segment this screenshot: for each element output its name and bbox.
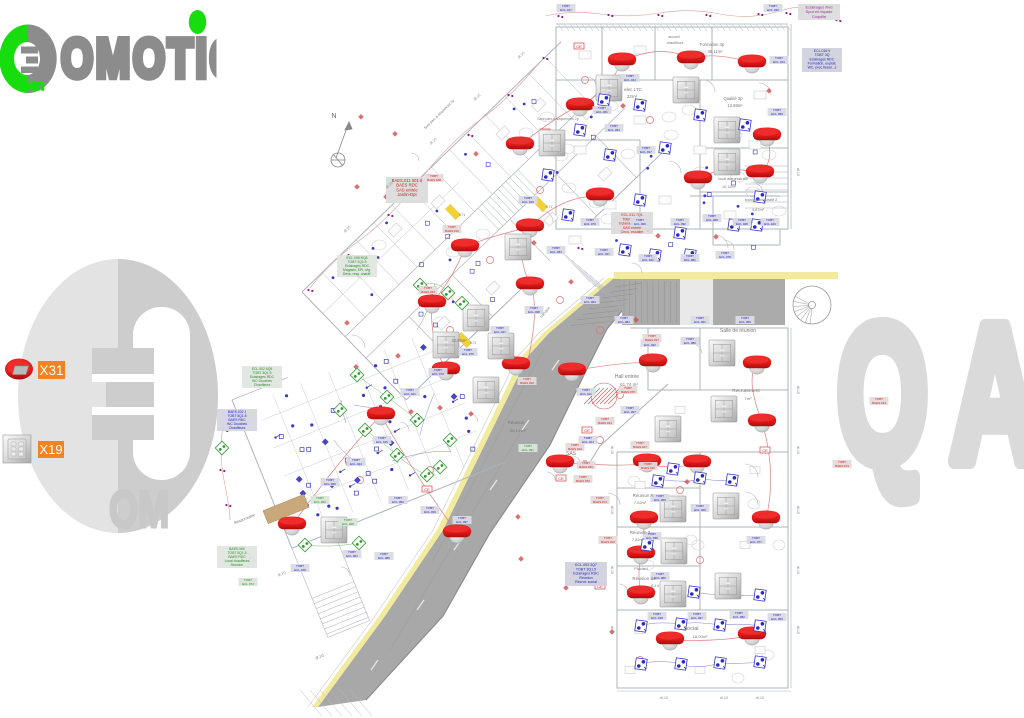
svg-text:BAES.092: BAES.092 [520,381,534,385]
svg-text:CE: CE [424,487,430,492]
svg-text:ECL.030: ECL.030 [424,510,436,514]
svg-text:Réunion: Réunion [231,563,244,567]
svg-text:ECL.082: ECL.082 [733,615,745,619]
svg-text:10,12m²: 10,12m² [722,185,737,189]
svg-text:BAES.010: BAES.010 [445,229,459,233]
svg-text:ECL.038: ECL.038 [528,310,540,314]
svg-text:ECL.059: ECL.059 [654,498,666,502]
svg-text:dl.10: dl.10 [610,626,614,634]
svg-text:ECL.084: ECL.084 [550,250,562,254]
svg-text:ECL.043: ECL.043 [764,222,776,226]
svg-text:WC, prec.fleear...s: WC, prec.fleear...s [808,66,837,70]
svg-text:8,14: 8,14 [651,583,660,588]
svg-text:Chauffeurs: Chauffeurs [254,383,271,387]
svg-text:ECL.090: ECL.090 [314,500,326,504]
svg-text:OM: OM [109,480,169,539]
svg-text:ECL.061: ECL.061 [694,320,706,324]
svg-text:ECL.042: ECL.042 [644,343,656,347]
svg-text:dl.10: dl.10 [610,506,614,514]
svg-text:Formation 4p: Formation 4p [700,42,725,47]
svg-text:BAES.074: BAES.074 [593,500,607,504]
svg-text:dl.10: dl.10 [756,696,764,700]
svg-text:ECL.093: ECL.093 [608,128,620,132]
svg-text:68,13 m²: 68,13 m² [510,428,526,433]
svg-text:BAES.032: BAES.032 [601,540,615,544]
svg-text:ECL.080: ECL.080 [684,341,696,345]
svg-text:BAES.068: BAES.068 [427,178,441,182]
svg-text:7m²: 7m² [745,396,753,401]
svg-text:BAES.074: BAES.074 [835,464,849,468]
svg-text:ECL.037: ECL.037 [640,150,652,154]
svg-text:13,68m²: 13,68m² [727,103,743,108]
svg-text:Hall entrée: Hall entrée [615,374,639,380]
svg-text:38,11m²: 38,11m² [707,49,723,54]
svg-text:ECL.044: ECL.044 [624,78,636,82]
svg-text:CE: CE [576,44,582,49]
svg-text:Jardin-Dpt: Jardin-Dpt [397,192,417,197]
svg-text:ECL.018: ECL.018 [294,568,306,572]
svg-text:Chauffeurs: Chauffeurs [229,426,246,430]
svg-text:ECL.043: ECL.043 [522,200,534,204]
svg-text:ECL.077: ECL.077 [750,540,762,544]
svg-text:ECL.021: ECL.021 [404,392,416,396]
svg-text:ECL.081: ECL.081 [684,258,696,262]
svg-text:ECL.056: ECL.056 [739,320,751,324]
svg-text:ECL.028: ECL.028 [736,222,748,226]
svg-text:ECL.037: ECL.037 [691,616,703,620]
svg-text:Social: Social [684,626,699,632]
svg-text:om: om [22,77,45,94]
svg-text:dl.10: dl.10 [796,446,800,454]
svg-text:accueil: accueil [668,35,679,39]
svg-text:BAES.065: BAES.065 [579,465,593,469]
svg-text:BAES.044: BAES.044 [598,421,612,425]
svg-text:ECL.050: ECL.050 [771,617,783,621]
svg-text:BAES.030: BAES.030 [641,466,655,470]
svg-text:ECL.039: ECL.039 [767,8,779,12]
svg-text:dl.10: dl.10 [796,566,800,574]
svg-text:elec LTC: elec LTC [624,87,642,92]
svg-text:18,00m²: 18,00m² [693,634,708,639]
svg-text:BAES.023: BAES.023 [872,401,886,405]
svg-text:ECL.064: ECL.064 [584,300,596,304]
svg-text:Réunion A: Réunion A [633,493,654,498]
svg-text:ECL.029: ECL.029 [324,482,336,486]
svg-text:CE: CE [558,476,564,481]
svg-text:ECL.073: ECL.073 [432,372,444,376]
svg-text:chauffeurs: chauffeurs [667,41,684,45]
svg-text:ECL.073: ECL.073 [584,222,596,226]
svg-text:dl.10: dl.10 [796,626,800,634]
svg-text:ECL.017: ECL.017 [560,8,572,12]
svg-text:dl.10: dl.10 [660,696,668,700]
svg-text:ECL.097: ECL.097 [456,520,468,524]
svg-text:22m²: 22m² [627,94,638,99]
svg-text:ECL.027: ECL.027 [598,252,610,256]
svg-text:9,87m²: 9,87m² [752,208,765,212]
svg-text:dl.10: dl.10 [610,446,614,454]
svg-text:X19: X19 [39,442,62,457]
svg-text:local administratif 2: local administratif 2 [745,198,778,202]
svg-text:ECL.018: ECL.018 [651,616,663,620]
svg-text:ECL.084: ECL.084 [618,320,630,324]
svg-text:Placard: Placard [634,566,648,571]
svg-text:Salle de réunion: Salle de réunion [720,328,756,334]
svg-text:BAES.078: BAES.078 [621,390,635,394]
svg-text:ECL.011: ECL.011 [580,392,592,396]
svg-text:local administratif: local administratif [718,177,748,181]
svg-text:CE: CE [584,428,590,433]
svg-text:ECL.092: ECL.092 [674,222,686,226]
svg-text:ECL.074: ECL.074 [242,582,254,586]
svg-text:dl.10: dl.10 [796,386,800,394]
svg-text:ECL.050: ECL.050 [771,112,783,116]
svg-text:ECL.048: ECL.048 [342,522,354,526]
svg-text:ECL.086: ECL.086 [654,576,666,580]
svg-text:ECL.075: ECL.075 [462,352,474,356]
svg-text:ECL.060: ECL.060 [634,222,646,226]
svg-text:N: N [331,113,336,120]
svg-text:X31: X31 [39,363,63,378]
svg-text:ECL.024: ECL.024 [350,462,362,466]
svg-text:CE: CE [762,448,768,453]
svg-text:A: A [950,285,1024,503]
svg-text:Coquille: Coquille [812,14,827,19]
svg-text:ECL.078: ECL.078 [719,255,731,259]
svg-text:32,65m²: 32,65m² [451,338,467,343]
svg-text:dl.10: dl.10 [610,566,614,574]
svg-text:Sani parc à séquences 2p: Sani parc à séquences 2p [537,117,579,121]
svg-text:ECL.068: ECL.068 [706,218,718,222]
svg-text:Réunion: Réunion [508,420,525,425]
svg-text:9,71: 9,71 [546,205,553,209]
svg-text:9,71: 9,71 [470,341,477,345]
svg-text:ECL.086: ECL.086 [378,556,390,560]
svg-text:Recrutement: Recrutement [732,388,760,394]
svg-text:7.82m²: 7.82m² [632,537,645,542]
svg-text:dl.10: dl.10 [796,168,800,176]
svg-text:ECL.058: ECL.058 [646,536,658,540]
svg-text:ECL.097: ECL.097 [624,410,636,414]
svg-text:7.02m²: 7.02m² [634,500,647,505]
svg-text:Réunion Sc: Réunion Sc [632,576,656,581]
svg-text:Réunion 3: Réunion 3 [630,530,651,535]
svg-text:Q: Q [837,285,928,503]
svg-text:ECL.061: ECL.061 [596,110,608,114]
svg-text:ECL.016: ECL.016 [376,440,388,444]
svg-text:BAES.053: BAES.053 [576,479,590,483]
svg-text:9,71: 9,71 [459,213,466,217]
svg-text:ECL.027: ECL.027 [494,330,506,334]
svg-text:BAES.097: BAES.097 [645,338,659,342]
svg-text:ECL.064: ECL.064 [346,554,358,558]
svg-text:ECL.091: ECL.091 [522,448,534,452]
svg-text:ECL.090: ECL.090 [392,500,404,504]
svg-text:BAES.047: BAES.047 [633,445,647,449]
svg-text:Circu, escalier: Circu, escalier [621,230,645,234]
svg-text:dl.10: dl.10 [720,696,728,700]
svg-text:BAES.043: BAES.043 [421,290,435,294]
svg-text:SAS: SAS [566,451,577,457]
svg-text:dl.10: dl.10 [796,506,800,514]
svg-text:Dess, resp. chauff.: Dess, resp. chauff. [343,272,371,276]
svg-text:61,74 m²: 61,74 m² [620,382,638,387]
svg-text:ECL.014: ECL.014 [773,60,785,64]
svg-text:ECL.069: ECL.069 [694,508,706,512]
svg-text:Recrut. social: Recrut. social [575,580,597,584]
svg-text:ECL.041: ECL.041 [642,258,654,262]
svg-text:Qualité 3p: Qualité 3p [723,96,743,101]
